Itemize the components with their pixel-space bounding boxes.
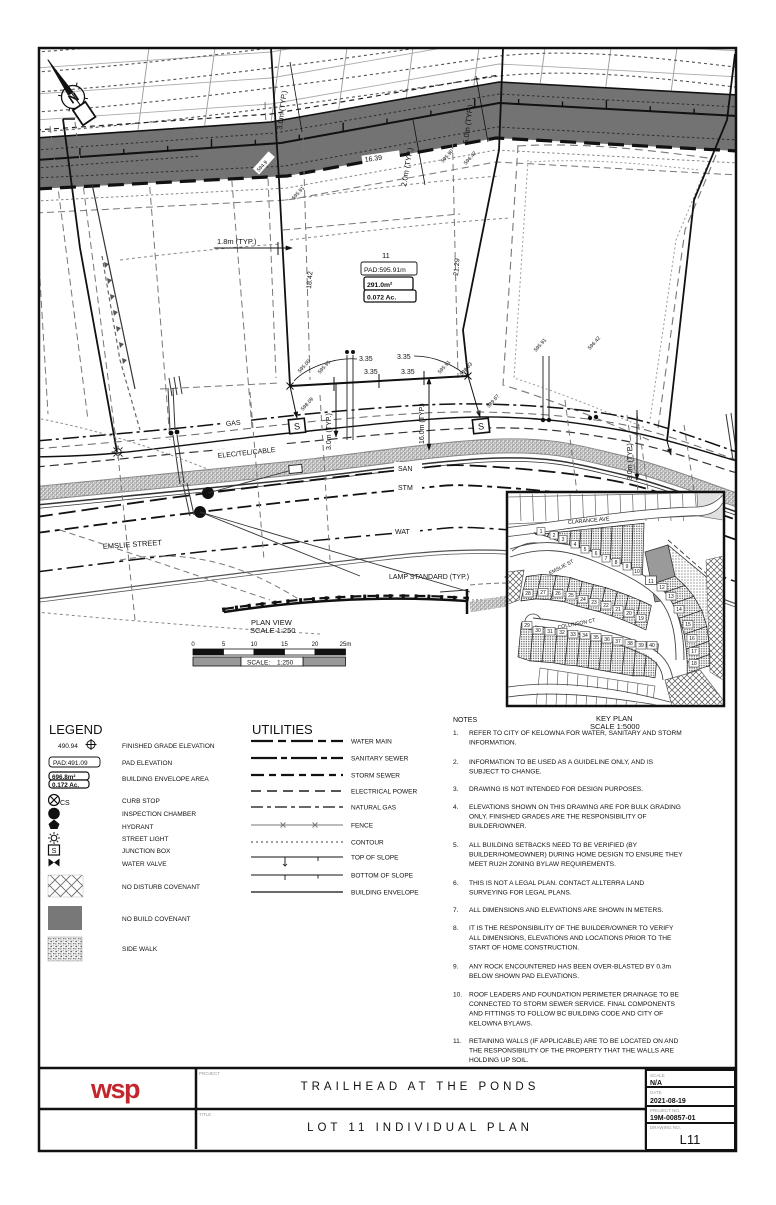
svg-text:15: 15 [281,642,288,648]
svg-text:SANITARY SEWER: SANITARY SEWER [351,756,409,763]
svg-text:33: 33 [570,632,576,638]
svg-text:9.: 9. [453,963,459,970]
svg-text:1.: 1. [453,730,459,737]
svg-text:35: 35 [593,635,599,641]
svg-text:21: 21 [615,607,621,613]
svg-text:DRAWING NO.: DRAWING NO. [650,1125,681,1130]
svg-text:25: 25 [568,593,574,599]
svg-text:5.: 5. [453,842,459,849]
svg-text:7: 7 [605,556,608,562]
svg-text:4: 4 [574,542,577,548]
svg-text:ANY ROCK ENCOUNTERED HAS BEEN: ANY ROCK ENCOUNTERED HAS BEEN OVER-BLAST… [469,963,672,970]
svg-text:0.072 Ac.: 0.072 Ac. [367,295,396,302]
svg-text:SAN: SAN [398,466,412,473]
svg-text:2: 2 [553,533,556,539]
svg-text:3.35: 3.35 [364,369,378,376]
svg-text:S: S [51,846,56,855]
svg-text:11: 11 [382,251,390,260]
svg-text:3.35: 3.35 [359,356,373,363]
svg-text:WATER MAIN: WATER MAIN [351,739,392,746]
svg-text:490.94: 490.94 [58,743,78,750]
svg-text:SIDE WALK: SIDE WALK [122,946,158,953]
svg-text:INFORMATION.: INFORMATION. [469,740,517,747]
svg-text:ALL BUILDING SETBACKS NEED TO: ALL BUILDING SETBACKS NEED TO BE VERIFIE… [469,842,638,849]
svg-text:37: 37 [615,639,621,645]
svg-text:19M-00857-01: 19M-00857-01 [650,1115,696,1122]
svg-text:6.: 6. [453,880,459,887]
svg-text:29: 29 [524,623,530,629]
svg-text:STORM SEWER: STORM SEWER [351,773,400,780]
svg-text:RETAINING WALLS (IF APPLICABLE: RETAINING WALLS (IF APPLICABLE) ARE TO B… [469,1038,678,1045]
svg-text:FINISHED GRADE ELEVATION: FINISHED GRADE ELEVATION [122,743,215,750]
svg-text:30: 30 [535,628,541,634]
svg-text:3.0m (TYP.): 3.0m (TYP.) [627,443,634,480]
svg-text:36: 36 [604,637,610,643]
svg-text:2021-08-19: 2021-08-19 [650,1098,686,1105]
svg-text:THE RESPONSIBILITY OF THE PROP: THE RESPONSIBILITY OF THE PROPERTY THAT … [469,1048,675,1055]
svg-text:DRAWING IS NOT INTENDED FOR DE: DRAWING IS NOT INTENDED FOR DESIGN PURPO… [469,786,643,793]
svg-text:ALL DIMENSIONS AND ELEVATIONS: ALL DIMENSIONS AND ELEVATIONS ARE SHOWN … [469,907,664,914]
svg-text:ROOF LEADERS AND FOUNDATION PE: ROOF LEADERS AND FOUNDATION PERIMETER DR… [469,992,680,999]
svg-text:HOLDING UP SOIL.: HOLDING UP SOIL. [469,1057,529,1064]
svg-text:KELOWNA BYLAWS.: KELOWNA BYLAWS. [469,1020,533,1027]
svg-text:4.: 4. [453,804,459,811]
svg-text:9: 9 [626,564,629,570]
svg-text:LEGEND: LEGEND [49,722,102,737]
svg-text:11: 11 [648,579,653,585]
svg-text:CURB STOP: CURB STOP [122,798,160,805]
svg-text:STM: STM [398,485,413,492]
svg-text:PROJECT NO.: PROJECT NO. [650,1108,680,1113]
svg-text:38: 38 [627,641,633,647]
svg-text:PROJECT: PROJECT [199,1071,220,1076]
svg-text:WATER VALVE: WATER VALVE [122,861,167,868]
svg-text:INFORMATION TO BE USED AS A GU: INFORMATION TO BE USED AS A GUIDELINE ON… [469,759,654,766]
svg-text:S: S [294,421,301,432]
svg-text:MEET RU2H ZONING BYLAW REQUIRE: MEET RU2H ZONING BYLAW REQUIREMENTS. [469,861,616,868]
svg-text:NATURAL GAS: NATURAL GAS [351,805,397,812]
svg-text:PAD:595.91m: PAD:595.91m [364,267,406,274]
svg-text:N/A: N/A [650,1080,662,1087]
svg-text:31: 31 [547,629,553,635]
svg-text:wsp: wsp [90,1074,140,1104]
svg-text:CONTOUR: CONTOUR [351,840,384,847]
svg-text:BUILDER/HOMEOWNER) DURING HOME: BUILDER/HOMEOWNER) DURING HOME DESIGN TO… [469,852,683,859]
svg-text:23: 23 [591,600,597,606]
svg-text:NO BUILD COVENANT: NO BUILD COVENANT [122,916,191,923]
svg-text:WAT: WAT [395,529,410,536]
svg-text:24: 24 [580,597,586,603]
svg-text:SCALE: SCALE [650,1073,665,1078]
svg-text:SURVEYING FOR LEGAL PLANS.: SURVEYING FOR LEGAL PLANS. [469,890,572,897]
svg-text:BOTTOM OF SLOPE: BOTTOM OF SLOPE [351,873,414,880]
svg-text:FENCE: FENCE [351,823,374,830]
svg-text:NOTES: NOTES [453,717,477,724]
svg-text:STREET LIGHT: STREET LIGHT [122,836,169,843]
svg-text:15: 15 [685,622,691,628]
svg-text:REFER TO CITY OF KELOWNA FOR W: REFER TO CITY OF KELOWNA FOR WATER, SANI… [469,730,682,737]
svg-text:PAD:491.09: PAD:491.09 [53,760,88,767]
svg-text:ELEVATIONS SHOWN ON THIS DRAWI: ELEVATIONS SHOWN ON THIS DRAWING ARE FOR… [469,804,681,811]
svg-text:0.172 Ac.: 0.172 Ac. [52,782,79,789]
svg-text:13: 13 [668,594,674,600]
svg-text:TRAILHEAD AT THE PONDS: TRAILHEAD AT THE PONDS [301,1081,540,1093]
svg-text:27: 27 [540,590,546,596]
svg-text:6: 6 [595,551,598,557]
svg-text:3.0m (TYP.): 3.0m (TYP.) [326,413,333,450]
svg-text:19: 19 [638,616,644,622]
svg-text:32: 32 [559,630,565,636]
svg-text:NO DISTURB COVENANT: NO DISTURB COVENANT [122,884,200,891]
svg-text:22: 22 [603,603,609,609]
svg-text:291.0m²: 291.0m² [367,282,393,289]
svg-text:34: 34 [582,633,588,639]
svg-text:BUILDER/OWNER.: BUILDER/OWNER. [469,823,527,830]
svg-text:SUBJECT TO CHANGE.: SUBJECT TO CHANGE. [469,768,542,775]
svg-text:2.: 2. [453,759,459,766]
svg-text:8.: 8. [453,925,459,932]
svg-text:1: 1 [540,529,543,535]
svg-text:25m: 25m [340,642,352,648]
svg-text:10: 10 [634,569,640,575]
svg-text:10.: 10. [453,992,462,999]
svg-text:10: 10 [251,642,258,648]
svg-text:1:250: 1:250 [277,660,294,667]
svg-text:CONNECTED TO STORM SEWER SERVI: CONNECTED TO STORM SEWER SERVICE. FINAL … [469,1001,676,1008]
svg-text:3: 3 [562,537,565,543]
svg-text:20: 20 [312,642,319,648]
svg-text:START OF HOME CONSTRUCTION.: START OF HOME CONSTRUCTION. [469,944,579,951]
svg-text:8: 8 [615,560,618,566]
svg-text:GAS: GAS [226,420,242,428]
svg-text:20: 20 [626,611,632,617]
svg-text:L11: L11 [680,1132,701,1147]
svg-text:TOP OF SLOPE: TOP OF SLOPE [351,855,399,862]
svg-text:BUILDING ENVELOPE: BUILDING ENVELOPE [351,890,419,897]
svg-text:3.35: 3.35 [401,369,415,376]
svg-text:3.: 3. [453,786,459,793]
svg-text:40: 40 [649,643,655,649]
svg-text:PAD ELEVATION: PAD ELEVATION [122,760,173,767]
svg-text:1.8m (TYP.): 1.8m (TYP.) [217,237,257,246]
svg-text:ELECTRICAL POWER: ELECTRICAL POWER [351,789,418,796]
svg-text:CS: CS [60,800,70,807]
svg-text:TITLE: TITLE [199,1112,211,1117]
svg-text:THIS IS NOT A LEGAL PLAN. CONT: THIS IS NOT A LEGAL PLAN. CONTACT ALLTER… [469,880,644,887]
svg-text:7.: 7. [453,907,459,914]
svg-text:IT IS THE RESPONSIBILITY OF TH: IT IS THE RESPONSIBILITY OF THE BUILDER/… [469,925,674,932]
svg-text:12: 12 [659,585,665,591]
svg-text:16: 16 [689,636,695,642]
svg-text:28: 28 [525,591,531,597]
svg-text:39: 39 [638,643,644,649]
svg-text:ALL DIMENSIONS, ELEVATIONS AND: ALL DIMENSIONS, ELEVATIONS AND LOCATIONS… [469,935,672,942]
svg-text:UTILITIES: UTILITIES [252,722,313,737]
svg-text:11.: 11. [453,1038,462,1045]
svg-text:5: 5 [584,547,587,553]
svg-text:S: S [478,421,485,432]
svg-text:SCALE:: SCALE: [247,660,270,667]
svg-text:3.35: 3.35 [397,354,411,361]
svg-text:LOT 11 INDIVIDUAL PLAN: LOT 11 INDIVIDUAL PLAN [307,1122,533,1134]
svg-text:26: 26 [555,591,561,597]
svg-text:HYDRANT: HYDRANT [122,824,153,831]
svg-text:BUILDING ENVELOPE AREA: BUILDING ENVELOPE AREA [122,776,209,783]
svg-text:BELOW SHOWN PAD ELEVATIONS.: BELOW SHOWN PAD ELEVATIONS. [469,973,579,980]
svg-text:DATE: DATE [650,1090,662,1095]
svg-text:JUNCTION BOX: JUNCTION BOX [122,848,171,855]
svg-text:16.0m (TYP.): 16.0m (TYP.) [419,403,426,444]
svg-text:17: 17 [691,649,697,655]
svg-text:AND FITTINGS TO FOLLOW BC BUIL: AND FITTINGS TO FOLLOW BC BUILDING CODE … [469,1011,663,1018]
svg-text:ONLY. FINISHED GRADES ARE THE: ONLY. FINISHED GRADES ARE THE RESPONSIBI… [469,814,647,821]
svg-text:14: 14 [676,607,682,613]
svg-text:INSPECTION CHAMBER: INSPECTION CHAMBER [122,811,196,818]
svg-text:18: 18 [691,661,697,667]
svg-text:SCALE 1:250: SCALE 1:250 [250,626,295,635]
